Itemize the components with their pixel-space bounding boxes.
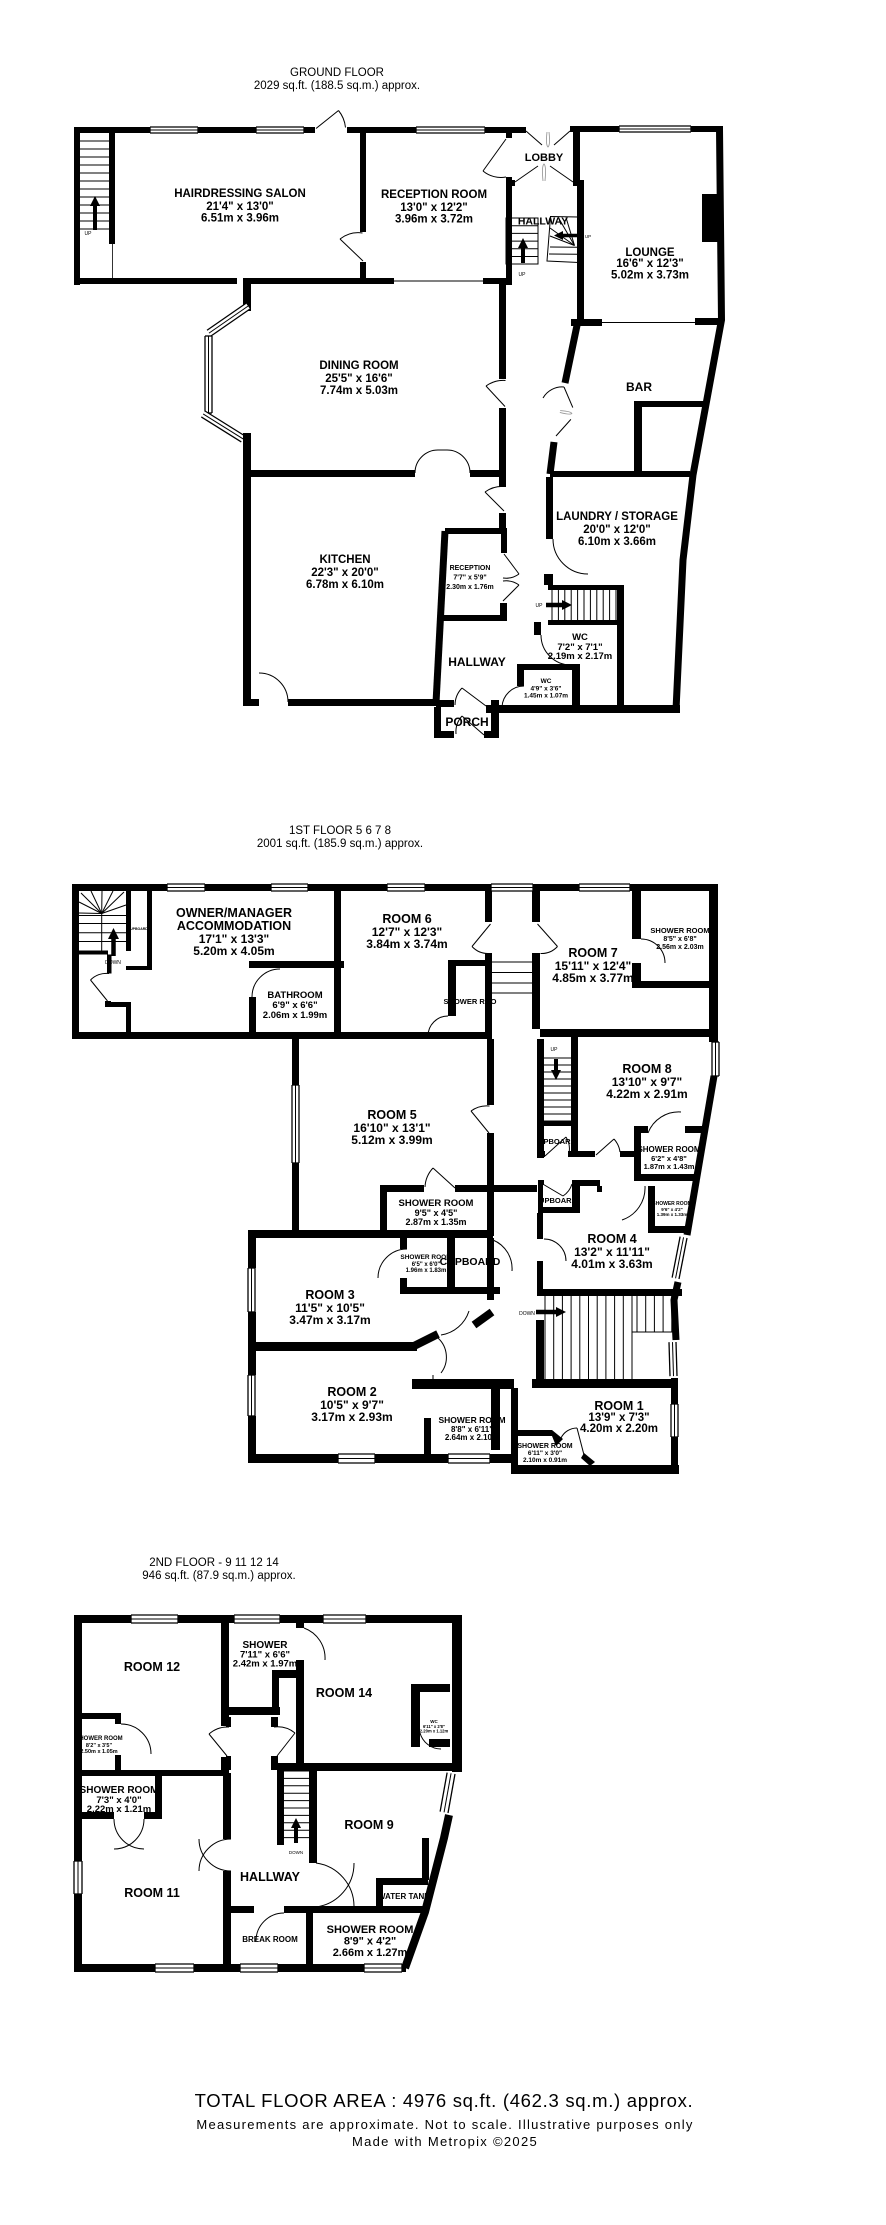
svg-text:6.78m x 6.10m: 6.78m x 6.10m bbox=[306, 579, 384, 591]
svg-text:ROOM 7: ROOM 7 bbox=[568, 946, 617, 960]
svg-text:RECEPTION: RECEPTION bbox=[450, 565, 491, 572]
svg-text:946 sq.ft. (87.9 sq.m.) approx: 946 sq.ft. (87.9 sq.m.) approx. bbox=[142, 1570, 295, 1582]
svg-text:1.96m x 1.83m: 1.96m x 1.83m bbox=[406, 1268, 447, 1274]
svg-text:ROOM 6: ROOM 6 bbox=[382, 912, 431, 926]
svg-text:2.87m x 1.35m: 2.87m x 1.35m bbox=[405, 1217, 466, 1227]
svg-text:2.10m x 0.91m: 2.10m x 0.91m bbox=[523, 1457, 567, 1464]
svg-text:5.12m x 3.99m: 5.12m x 3.99m bbox=[351, 1133, 432, 1147]
svg-text:6.51m x 3.96m: 6.51m x 3.96m bbox=[201, 213, 279, 225]
svg-text:SHOWER ROOM: SHOWER ROOM bbox=[517, 1443, 572, 1450]
svg-text:SHOWER ROOM: SHOWER ROOM bbox=[650, 926, 709, 935]
svg-text:ROOM 11: ROOM 11 bbox=[124, 1886, 180, 1900]
svg-text:3.47m x 3.17m: 3.47m x 3.17m bbox=[289, 1313, 370, 1327]
svg-text:6'11" x 3'0": 6'11" x 3'0" bbox=[528, 1450, 562, 1457]
svg-text:WC: WC bbox=[541, 678, 552, 685]
svg-text:DOWN: DOWN bbox=[519, 1311, 535, 1317]
svg-text:UP: UP bbox=[536, 603, 544, 609]
svg-text:2.30m x 1.76m: 2.30m x 1.76m bbox=[446, 584, 493, 591]
svg-text:22'3" x 20'0": 22'3" x 20'0" bbox=[311, 567, 379, 579]
svg-text:DOWN: DOWN bbox=[289, 1850, 303, 1855]
svg-text:4.85m x 3.77m: 4.85m x 3.77m bbox=[552, 971, 633, 985]
svg-text:UPBOARD: UPBOARD bbox=[130, 927, 148, 931]
svg-text:8'9" x 4'2": 8'9" x 4'2" bbox=[344, 1936, 396, 1948]
svg-text:4.01m x 3.63m: 4.01m x 3.63m bbox=[571, 1257, 652, 1271]
svg-text:UP: UP bbox=[585, 234, 591, 239]
svg-text:ROOM 4: ROOM 4 bbox=[587, 1232, 636, 1246]
svg-text:8'5" x 6'8": 8'5" x 6'8" bbox=[663, 936, 696, 943]
svg-text:13'0" x 12'2": 13'0" x 12'2" bbox=[400, 202, 468, 214]
svg-text:2.50m x 1.05m: 2.50m x 1.05m bbox=[80, 1749, 117, 1755]
svg-text:SHOWER ROOM: SHOWER ROOM bbox=[438, 1415, 505, 1425]
svg-text:KITCHEN: KITCHEN bbox=[319, 554, 370, 566]
svg-text:LOBBY: LOBBY bbox=[525, 152, 564, 164]
svg-text:Made with Metropix ©2025: Made with Metropix ©2025 bbox=[352, 2134, 538, 2149]
svg-text:20'0" x 12'0": 20'0" x 12'0" bbox=[583, 524, 651, 536]
svg-text:3.17m x 2.93m: 3.17m x 2.93m bbox=[311, 1410, 392, 1424]
svg-text:2.64m x 2.10m: 2.64m x 2.10m bbox=[445, 1433, 499, 1442]
svg-text:ACCOMMODATION: ACCOMMODATION bbox=[177, 919, 291, 933]
svg-text:UP: UP bbox=[519, 272, 527, 278]
svg-text:5.02m x 3.73m: 5.02m x 3.73m bbox=[611, 270, 689, 282]
svg-text:1ST FLOOR 5 6 7 8: 1ST FLOOR 5 6 7 8 bbox=[289, 825, 391, 837]
svg-text:LAUNDRY / STORAGE: LAUNDRY / STORAGE bbox=[556, 511, 678, 523]
svg-text:16'6" x 12'3": 16'6" x 12'3" bbox=[616, 258, 684, 270]
svg-text:1.45m x 1.07m: 1.45m x 1.07m bbox=[524, 693, 568, 700]
svg-text:7'7" x 5'9": 7'7" x 5'9" bbox=[453, 575, 486, 582]
svg-text:2.56m x 2.03m: 2.56m x 2.03m bbox=[656, 944, 703, 951]
svg-text:PORCH: PORCH bbox=[445, 715, 488, 729]
svg-text:BREAK ROOM: BREAK ROOM bbox=[242, 1935, 298, 1944]
svg-text:3.96m x 3.72m: 3.96m x 3.72m bbox=[395, 214, 473, 226]
svg-text:SHOWER ROOM: SHOWER ROOM bbox=[637, 1145, 700, 1154]
svg-text:HALLWAY: HALLWAY bbox=[240, 1870, 301, 1884]
svg-text:2.66m x 1.27m: 2.66m x 1.27m bbox=[333, 1947, 408, 1959]
svg-text:ROOM 14: ROOM 14 bbox=[316, 1686, 372, 1700]
svg-text:2.22m x 1.21m: 2.22m x 1.21m bbox=[87, 1804, 151, 1815]
svg-text:2.06m x 1.99m: 2.06m x 1.99m bbox=[263, 1010, 327, 1021]
svg-text:SHOWER ROOM: SHOWER ROOM bbox=[75, 1736, 122, 1742]
svg-text:TOTAL FLOOR AREA : 4976 sq.ft.: TOTAL FLOOR AREA : 4976 sq.ft. (462.3 sq… bbox=[195, 2090, 694, 2111]
svg-text:1.87m x 1.43m: 1.87m x 1.43m bbox=[644, 1162, 695, 1171]
svg-text:25'5" x 16'6": 25'5" x 16'6" bbox=[325, 373, 393, 385]
svg-text:3.84m x 3.74m: 3.84m x 3.74m bbox=[366, 937, 447, 951]
svg-text:UP: UP bbox=[551, 1047, 559, 1053]
svg-text:DINING ROOM: DINING ROOM bbox=[319, 360, 398, 372]
svg-text:4.20m x 2.20m: 4.20m x 2.20m bbox=[580, 1423, 658, 1435]
svg-text:2ND FLOOR - 9 11 12 14: 2ND FLOOR - 9 11 12 14 bbox=[149, 1557, 279, 1569]
svg-text:ROOM 12: ROOM 12 bbox=[124, 1660, 180, 1674]
svg-text:2.19m x 2.17m: 2.19m x 2.17m bbox=[548, 651, 612, 662]
svg-text:UP: UP bbox=[85, 231, 93, 237]
svg-text:6.10m x 3.66m: 6.10m x 3.66m bbox=[578, 536, 656, 548]
svg-text:21'4" x 13'0": 21'4" x 13'0" bbox=[206, 201, 274, 213]
svg-text:2001 sq.ft. (185.9 sq.m.) appr: 2001 sq.ft. (185.9 sq.m.) approx. bbox=[257, 838, 423, 850]
svg-text:2029 sq.ft. (188.5 sq.m.) appr: 2029 sq.ft. (188.5 sq.m.) approx. bbox=[254, 80, 420, 92]
svg-text:WATER TANK: WATER TANK bbox=[378, 1892, 430, 1901]
svg-text:ROOM 8: ROOM 8 bbox=[622, 1062, 671, 1076]
svg-text:GROUND FLOOR: GROUND FLOOR bbox=[290, 67, 384, 79]
svg-text:4.22m x 2.91m: 4.22m x 2.91m bbox=[606, 1087, 687, 1101]
svg-text:HAIRDRESSING SALON: HAIRDRESSING SALON bbox=[174, 188, 306, 200]
svg-text:1.39m x 1.33m: 1.39m x 1.33m bbox=[657, 1212, 688, 1217]
svg-text:ROOM 9: ROOM 9 bbox=[344, 1818, 393, 1832]
svg-text:UPBOARD: UPBOARD bbox=[539, 1196, 578, 1205]
svg-text:BAR: BAR bbox=[626, 380, 652, 394]
svg-text:ROOM 5: ROOM 5 bbox=[367, 1108, 416, 1122]
svg-text:ROOM 1: ROOM 1 bbox=[594, 1399, 643, 1413]
svg-text:Measurements are approximate.: Measurements are approximate. Not to sca… bbox=[196, 2117, 693, 2132]
svg-text:SHOWER ROOM: SHOWER ROOM bbox=[327, 1924, 414, 1936]
svg-text:ROOM 2: ROOM 2 bbox=[327, 1385, 376, 1399]
svg-text:2.42m x 1.97m: 2.42m x 1.97m bbox=[233, 1659, 297, 1670]
svg-text:7.74m x 5.03m: 7.74m x 5.03m bbox=[320, 385, 398, 397]
svg-text:4'9" x 3'6": 4'9" x 3'6" bbox=[531, 686, 562, 693]
svg-text:2.20m x 1.12m: 2.20m x 1.12m bbox=[420, 1729, 449, 1734]
svg-text:HALLWAY: HALLWAY bbox=[448, 655, 506, 669]
svg-text:RECEPTION ROOM: RECEPTION ROOM bbox=[381, 189, 487, 201]
svg-text:5.20m x 4.05m: 5.20m x 4.05m bbox=[193, 944, 274, 958]
svg-text:OWNER/MANAGER: OWNER/MANAGER bbox=[176, 906, 292, 920]
svg-text:ROOM 3: ROOM 3 bbox=[305, 1288, 354, 1302]
